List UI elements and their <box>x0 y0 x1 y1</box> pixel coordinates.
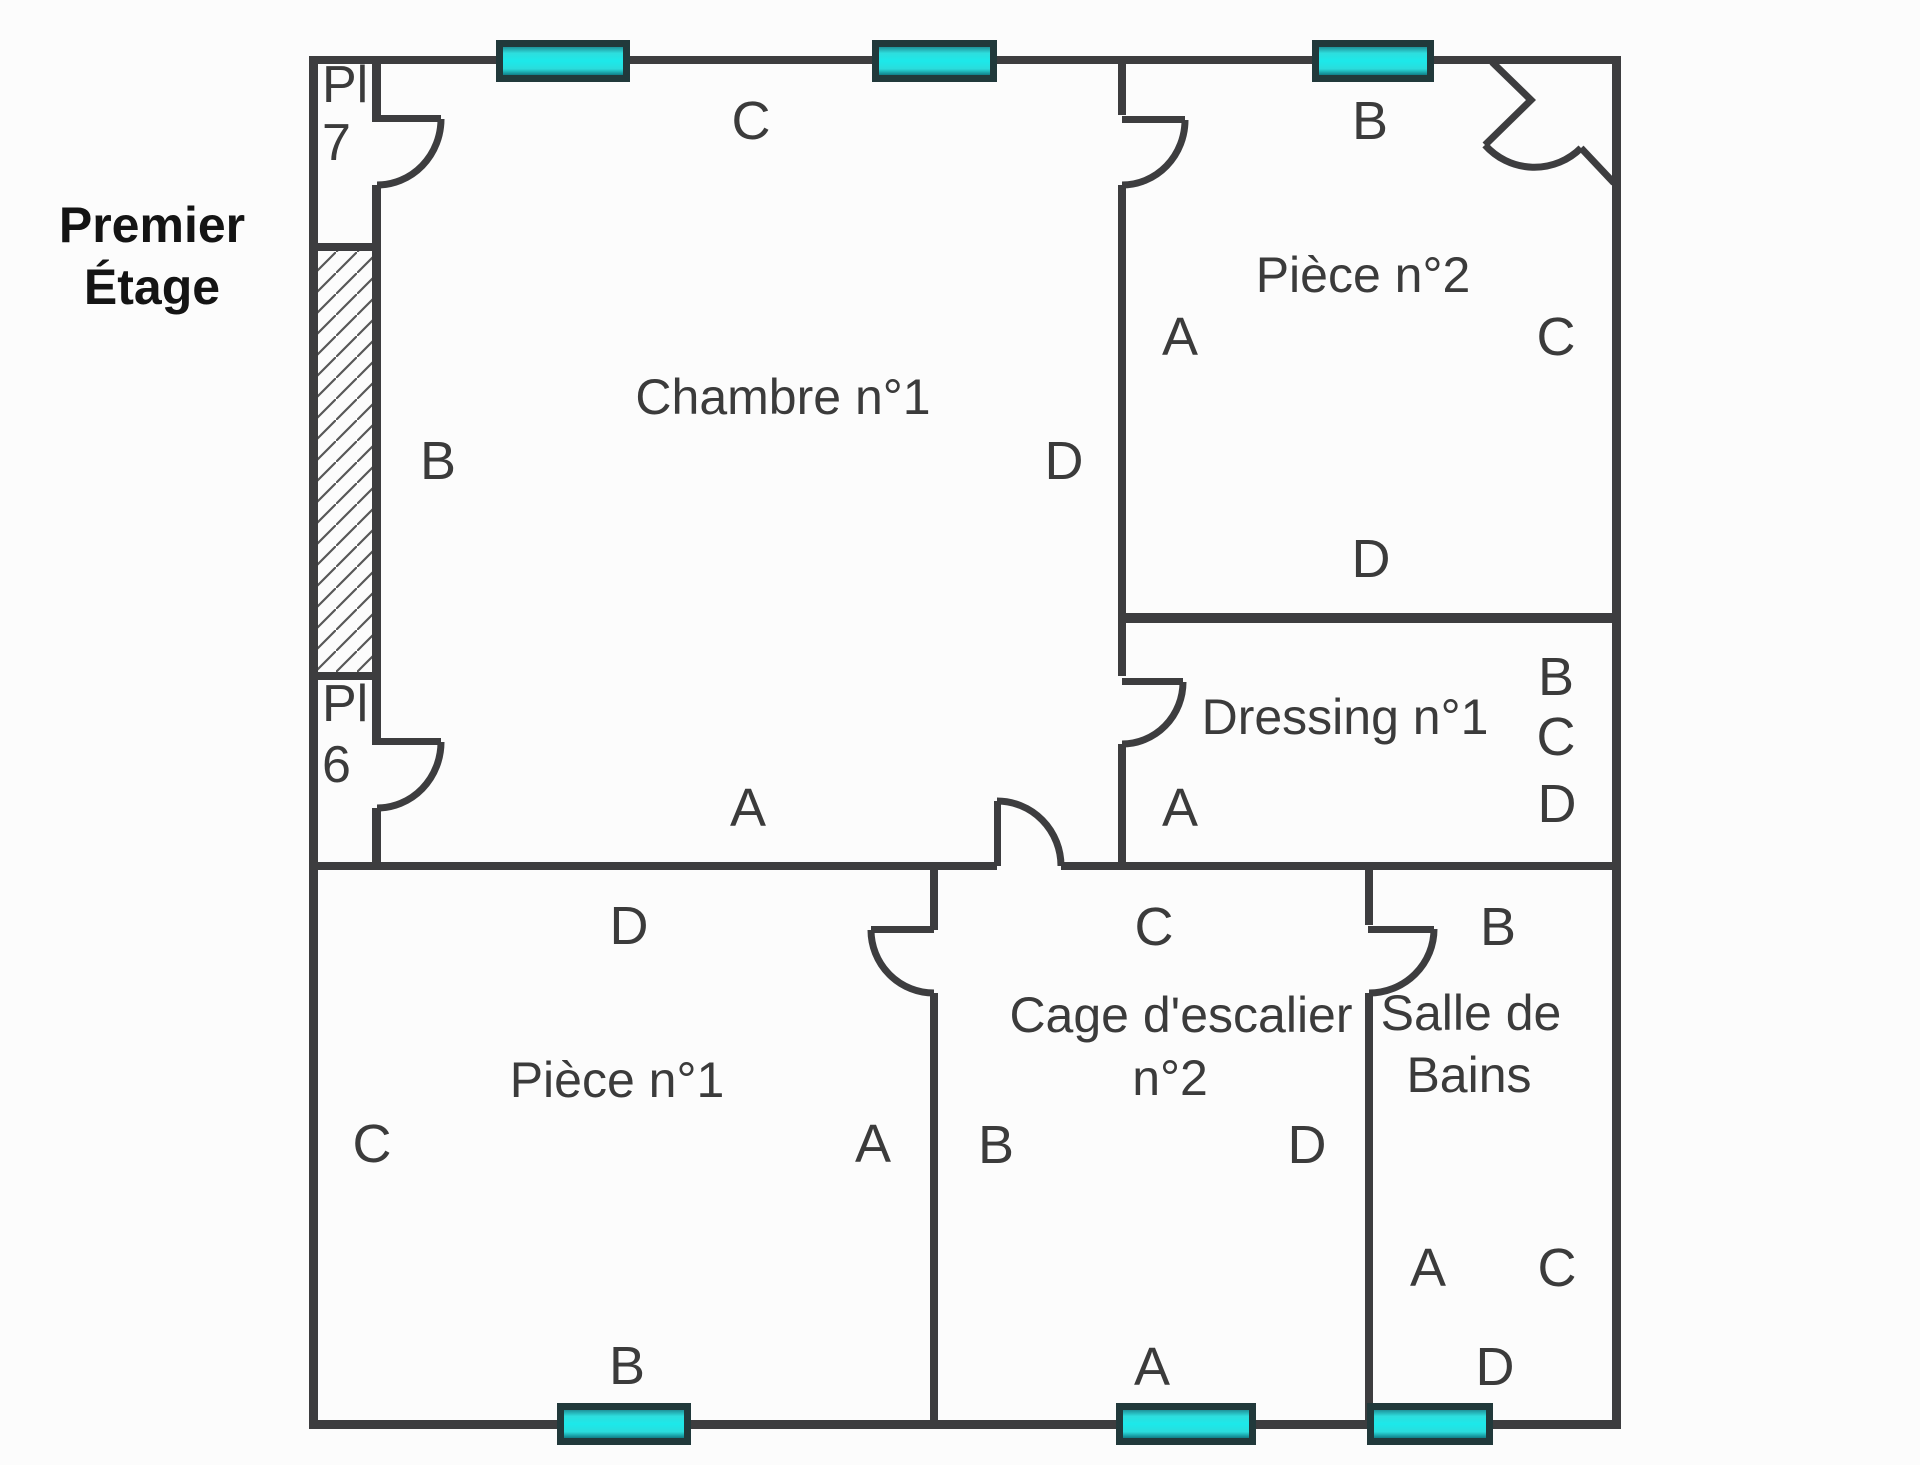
svg-text:6: 6 <box>322 736 351 794</box>
svg-text:Cage d'escalier: Cage d'escalier <box>1009 987 1352 1043</box>
svg-text:B: B <box>1352 91 1388 151</box>
svg-text:D: D <box>1045 431 1084 491</box>
svg-text:Pl: Pl <box>322 56 368 114</box>
svg-text:A: A <box>730 778 766 838</box>
svg-text:D: D <box>1352 529 1391 589</box>
svg-text:Étage: Étage <box>84 259 220 315</box>
svg-text:D: D <box>1538 774 1577 834</box>
svg-text:B: B <box>1538 647 1574 707</box>
svg-text:C: C <box>1537 307 1576 367</box>
svg-text:D: D <box>1476 1337 1515 1397</box>
svg-text:C: C <box>1135 897 1174 957</box>
svg-text:n°2: n°2 <box>1132 1050 1208 1106</box>
svg-text:B: B <box>1480 897 1516 957</box>
svg-text:D: D <box>610 896 649 956</box>
svg-text:Dressing n°1: Dressing n°1 <box>1202 689 1489 745</box>
svg-text:C: C <box>353 1114 392 1174</box>
svg-text:Chambre n°1: Chambre n°1 <box>635 369 930 425</box>
svg-text:B: B <box>978 1115 1014 1175</box>
svg-text:Premier: Premier <box>59 197 245 253</box>
svg-text:B: B <box>420 431 456 491</box>
svg-text:Bains: Bains <box>1406 1047 1531 1103</box>
svg-text:A: A <box>1162 778 1198 838</box>
svg-text:Salle de: Salle de <box>1381 985 1562 1041</box>
svg-text:C: C <box>1537 707 1576 767</box>
svg-text:A: A <box>1410 1238 1446 1298</box>
svg-text:A: A <box>1162 307 1198 367</box>
svg-text:C: C <box>732 91 771 151</box>
svg-text:A: A <box>1134 1337 1170 1397</box>
svg-text:Pièce n°1: Pièce n°1 <box>510 1052 725 1108</box>
svg-text:Pl: Pl <box>322 675 368 733</box>
svg-text:A: A <box>855 1114 891 1174</box>
svg-text:B: B <box>609 1336 645 1396</box>
svg-text:D: D <box>1288 1115 1327 1175</box>
svg-text:Pièce n°2: Pièce n°2 <box>1256 247 1471 303</box>
svg-text:C: C <box>1538 1238 1577 1298</box>
svg-text:7: 7 <box>322 114 351 172</box>
